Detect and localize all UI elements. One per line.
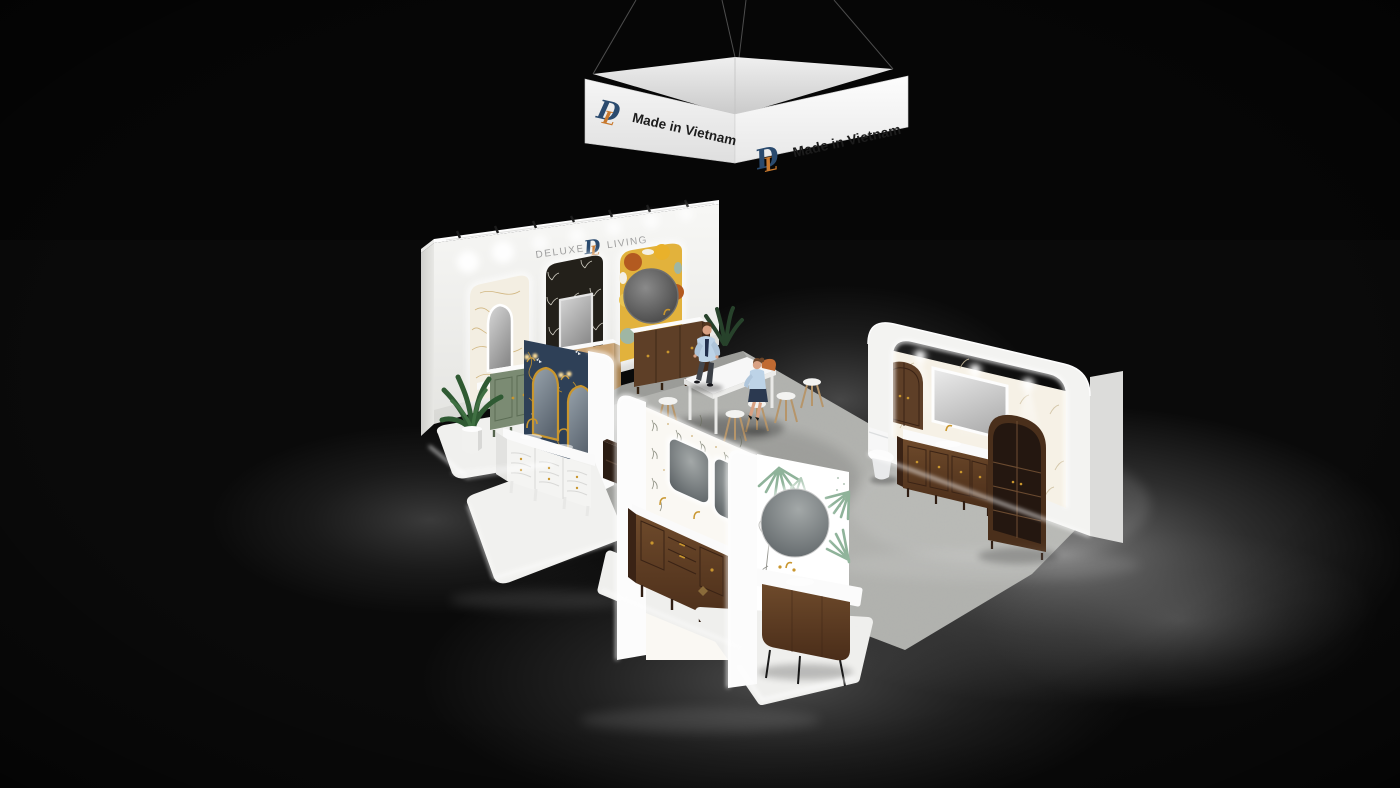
booth-render-scene: D L Made in Vietnam D L Made in Vietnam [0, 0, 1400, 788]
render-canvas: D L Made in Vietnam D L Made in Vietnam [0, 0, 1400, 788]
vignette [0, 0, 1400, 788]
